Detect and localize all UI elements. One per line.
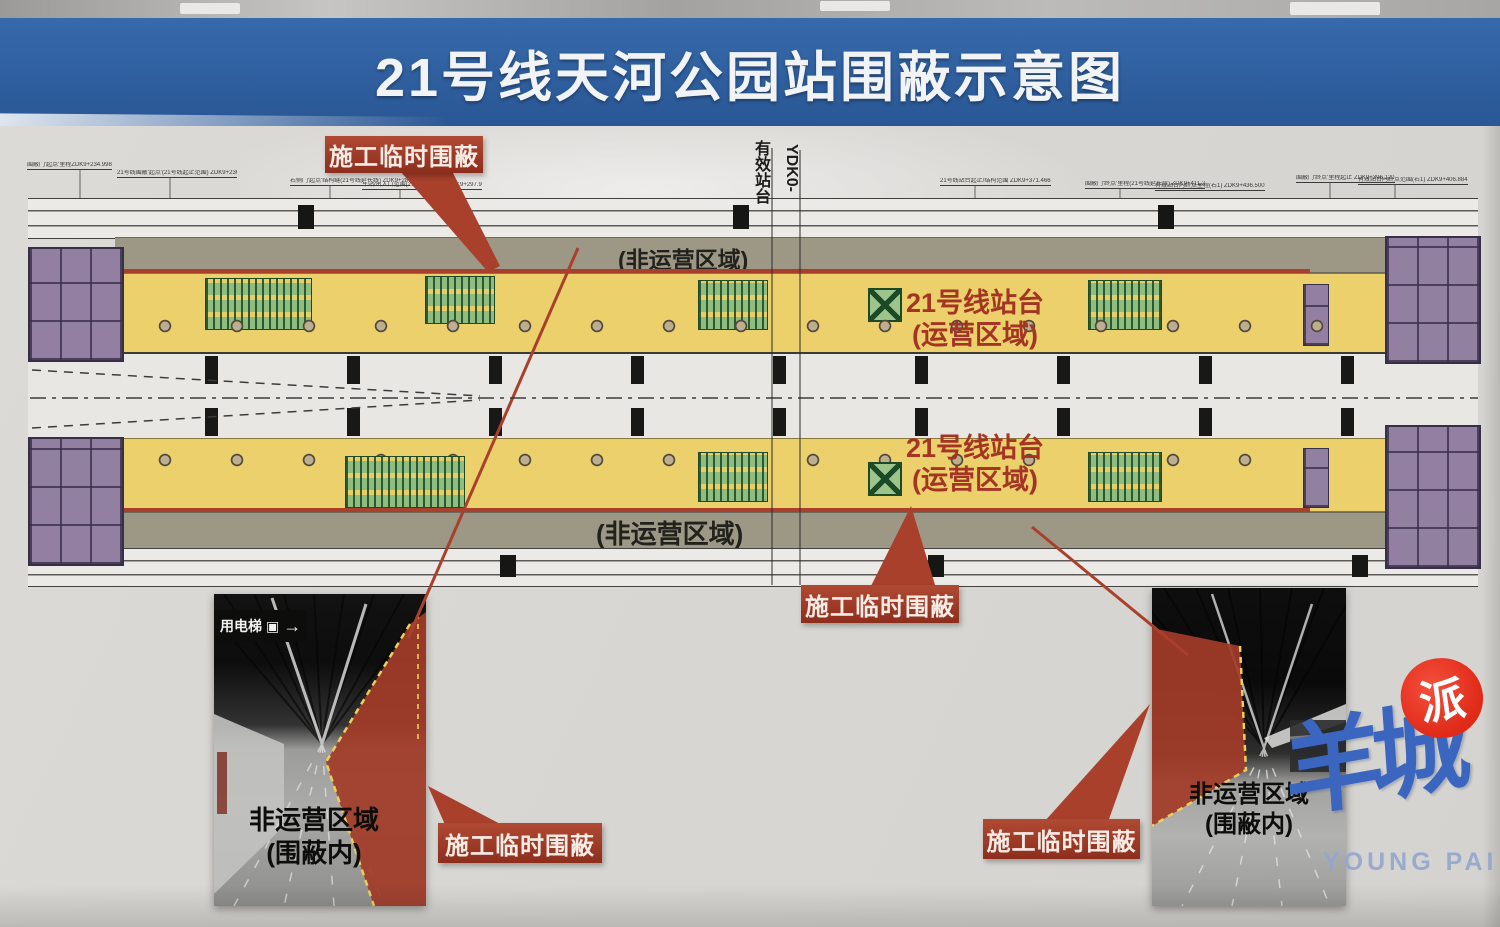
elevator-sign-text: 用电梯 (220, 616, 262, 636)
door-marker (500, 555, 516, 577)
escalator (425, 276, 495, 324)
elevator-icon: ▣ (266, 618, 279, 635)
ceiling-light (820, 1, 890, 11)
left-photo: 用电梯 ▣ → 非运营区域 (围蔽内) (214, 594, 426, 906)
dimension-annotation: 车站/出入口范围(21号线延长线) ZDK9+297.900 (362, 182, 482, 190)
station-rooms-right-upper (1385, 236, 1481, 364)
lower-track-band (28, 548, 1478, 587)
bottom-shadow (0, 885, 1500, 927)
callout-right-photo: 施工临时围蔽 (983, 819, 1140, 859)
callout-left-photo: 施工临时围蔽 (438, 823, 602, 863)
left-photo-caption: 非运营区域 (围蔽内) (224, 804, 404, 869)
ceiling-light (1290, 2, 1380, 15)
track-pillars (205, 356, 1360, 384)
callout-enclosure-bottom: 施工临时围蔽 (801, 585, 959, 623)
escalator (1088, 452, 1162, 502)
track-pillars (205, 408, 1360, 436)
dimension-annotation: 21号线站台起止/结构范围 ZDK9+371.466 (940, 178, 1051, 186)
arrow-right-icon: → (283, 616, 301, 637)
station-rooms-left-upper (28, 247, 124, 362)
dimension-annotation: 有效站台内终点里程(右1) ZDK9+436.500 (1155, 183, 1265, 191)
page-title: 21号线天河公园站围蔽示意图 (375, 33, 1125, 112)
dimension-annotation: 有效站台内终点范围(右1) ZDK9+406.884 (1358, 177, 1468, 185)
station-rooms-right-lower (1385, 425, 1481, 569)
poster-photo: 21号线天河公园站围蔽示意图 围蔽门'起点'里程ZDK9+234.998 21号… (0, 0, 1500, 927)
escalator (345, 456, 465, 508)
door-marker (733, 205, 749, 229)
callout-enclosure-top: 施工临时围蔽 (325, 136, 483, 173)
platform-columns (85, 318, 1345, 334)
platform-room (1303, 448, 1329, 508)
door-marker (298, 205, 314, 229)
chainage-label: YDK0- (782, 144, 800, 208)
elevator-sign: 用电梯 ▣ → (214, 610, 307, 642)
effective-platform-label: 有效站台 (748, 140, 772, 212)
watermark-en: YOUNG PAI (1323, 848, 1497, 877)
lower-non-operating-label: (非运营区域) (596, 514, 743, 551)
door-marker (1158, 205, 1174, 229)
lower-non-operating-band (115, 512, 1385, 550)
title-band: 21号线天河公园站围蔽示意图 (0, 18, 1500, 126)
station-rooms-left-lower (28, 437, 124, 566)
platform-room (1303, 284, 1329, 346)
lower-platform-label: 21号线站台 (运营区域) (875, 433, 1075, 497)
ceiling-light (180, 3, 240, 14)
dimension-annotation: 21号线围蔽'起点'(21号线起止范围) ZDK9+236.500 (117, 170, 237, 178)
watermark: 羊城 派 YOUNG PAI (1283, 652, 1500, 897)
upper-non-operating-band (115, 237, 1385, 273)
escalator (698, 452, 768, 502)
door-marker (928, 555, 944, 577)
dimension-annotation: 围蔽门'起点'里程ZDK9+234.998 (27, 162, 112, 170)
door-marker (1352, 555, 1368, 577)
upper-platform-label: 21号线站台 (运营区域) (875, 288, 1075, 352)
